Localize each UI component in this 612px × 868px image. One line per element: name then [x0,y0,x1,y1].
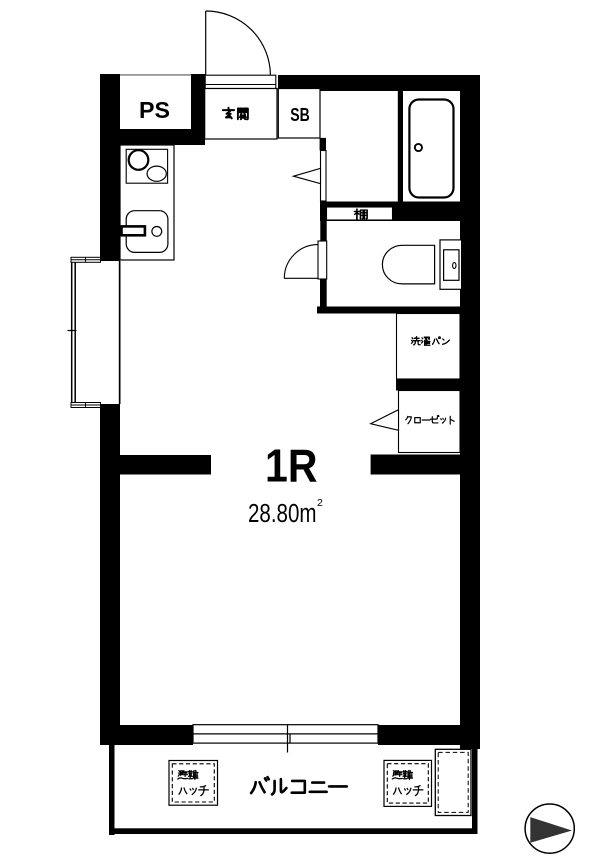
svg-text:1R: 1R [265,439,318,491]
svg-text:28.80m: 28.80m [248,500,317,528]
svg-text:SB: SB [290,105,310,125]
svg-text:PS: PS [139,97,170,123]
svg-text:2: 2 [317,497,323,509]
